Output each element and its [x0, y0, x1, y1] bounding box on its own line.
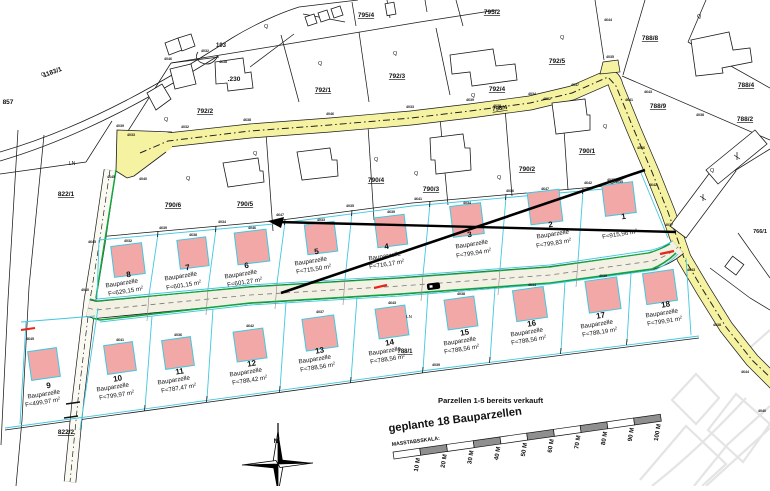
- svg-text:4037: 4037: [665, 223, 673, 227]
- svg-text:795/2: 795/2: [484, 9, 501, 16]
- svg-text:Q: Q: [497, 175, 502, 181]
- svg-text:4046: 4046: [326, 112, 334, 116]
- svg-text:LN: LN: [406, 314, 412, 319]
- svg-text:4647: 4647: [276, 213, 284, 217]
- svg-text:4033: 4033: [127, 133, 135, 137]
- svg-text:4035: 4035: [606, 55, 614, 59]
- svg-text:LN: LN: [69, 161, 76, 167]
- svg-text:4039: 4039: [116, 124, 124, 128]
- svg-text:4645: 4645: [107, 175, 115, 179]
- svg-text:4642: 4642: [584, 181, 592, 185]
- svg-text:4647: 4647: [541, 187, 549, 191]
- svg-text:4644: 4644: [741, 370, 749, 374]
- svg-text:4034: 4034: [463, 201, 471, 205]
- svg-text:790/2: 790/2: [519, 166, 536, 173]
- svg-text:4040: 4040: [139, 177, 147, 181]
- svg-text:Q: Q: [710, 168, 715, 174]
- svg-text:4036: 4036: [637, 146, 645, 150]
- svg-text:4032: 4032: [543, 97, 551, 101]
- svg-text:Q: Q: [164, 117, 169, 123]
- svg-text:857: 857: [3, 99, 14, 106]
- svg-text:4642: 4642: [246, 324, 254, 328]
- svg-text:4046: 4046: [248, 226, 256, 230]
- svg-text:4033: 4033: [406, 105, 414, 109]
- svg-text:4641: 4641: [625, 98, 633, 102]
- svg-text:4036: 4036: [174, 333, 182, 337]
- svg-text:790/6: 790/6: [165, 202, 182, 209]
- svg-text:Q: Q: [186, 176, 191, 182]
- svg-text:788/8: 788/8: [642, 35, 659, 42]
- svg-text:792/5: 792/5: [549, 58, 566, 65]
- svg-text:790/5: 790/5: [237, 201, 254, 208]
- svg-text:4033: 4033: [317, 218, 325, 222]
- svg-text:4032: 4032: [124, 239, 132, 243]
- svg-text:N: N: [274, 438, 279, 445]
- svg-text:4638: 4638: [219, 60, 227, 64]
- svg-text:792/1: 792/1: [315, 87, 332, 94]
- svg-text:4032: 4032: [201, 49, 209, 53]
- svg-text:4642: 4642: [649, 183, 657, 187]
- svg-text:4032: 4032: [181, 125, 189, 129]
- svg-text:4034: 4034: [528, 92, 536, 96]
- svg-text:822/2: 822/2: [58, 429, 75, 436]
- svg-text:4034: 4034: [218, 220, 226, 224]
- svg-text:790/3: 790/3: [423, 186, 440, 193]
- svg-text:Q: Q: [560, 35, 565, 41]
- svg-text:790/1: 790/1: [579, 148, 596, 155]
- svg-text:4038: 4038: [713, 323, 721, 327]
- svg-text:788/9: 788/9: [650, 103, 667, 110]
- svg-text:4638: 4638: [189, 233, 197, 237]
- svg-text:4647: 4647: [571, 83, 579, 87]
- svg-text:792/4: 792/4: [489, 86, 506, 93]
- svg-text:4037: 4037: [316, 310, 324, 314]
- svg-text:4641: 4641: [414, 197, 422, 201]
- svg-text:4040: 4040: [81, 288, 89, 292]
- svg-text:822/1: 822/1: [58, 191, 75, 198]
- svg-text:.230: .230: [228, 76, 241, 83]
- svg-text:Q: Q: [264, 24, 269, 30]
- svg-text:4037: 4037: [607, 178, 615, 182]
- svg-text:795/4: 795/4: [358, 12, 375, 19]
- svg-text:4645: 4645: [26, 337, 34, 341]
- svg-text:Q: Q: [318, 61, 323, 67]
- svg-text:788/2: 788/2: [737, 116, 754, 123]
- svg-text:Q: Q: [603, 124, 608, 130]
- svg-text:766/1: 766/1: [753, 229, 767, 235]
- svg-text:4643: 4643: [644, 90, 652, 94]
- svg-text:792/2: 792/2: [197, 108, 214, 115]
- svg-text:4039: 4039: [432, 363, 440, 367]
- svg-text:4641: 4641: [116, 338, 124, 342]
- svg-text:4038: 4038: [457, 292, 465, 296]
- svg-text:4643: 4643: [687, 268, 695, 272]
- svg-text:4638: 4638: [243, 118, 251, 122]
- svg-text:790/4: 790/4: [368, 177, 385, 184]
- svg-text:Q: Q: [41, 72, 46, 78]
- svg-text:4639: 4639: [466, 98, 474, 102]
- svg-text:4046: 4046: [164, 57, 172, 61]
- svg-text:4035: 4035: [346, 204, 354, 208]
- svg-text:4644: 4644: [604, 18, 612, 22]
- svg-text:193: 193: [216, 43, 227, 49]
- svg-text:Q: Q: [697, 14, 702, 20]
- svg-text:Q: Q: [253, 151, 258, 157]
- svg-text:Q: Q: [393, 51, 398, 57]
- svg-text:792/3: 792/3: [389, 73, 406, 80]
- svg-text:4638: 4638: [493, 104, 501, 108]
- svg-text:788/4: 788/4: [738, 82, 755, 89]
- svg-text:4639: 4639: [159, 226, 167, 230]
- svg-text:4645: 4645: [88, 240, 96, 244]
- svg-text:Q: Q: [374, 157, 379, 163]
- svg-text:4038: 4038: [696, 113, 704, 117]
- svg-text:4040: 4040: [758, 409, 766, 413]
- svg-text:4039: 4039: [599, 274, 607, 278]
- svg-text:Q: Q: [414, 171, 419, 177]
- svg-text:4644: 4644: [528, 283, 536, 287]
- svg-text:4643: 4643: [388, 301, 396, 305]
- svg-text:4036: 4036: [506, 189, 514, 193]
- svg-text:4035: 4035: [615, 180, 623, 184]
- svg-text:Parzellen 1-5 bereits verkauft: Parzellen 1-5 bereits verkauft: [438, 396, 544, 405]
- svg-text:4639: 4639: [387, 210, 395, 214]
